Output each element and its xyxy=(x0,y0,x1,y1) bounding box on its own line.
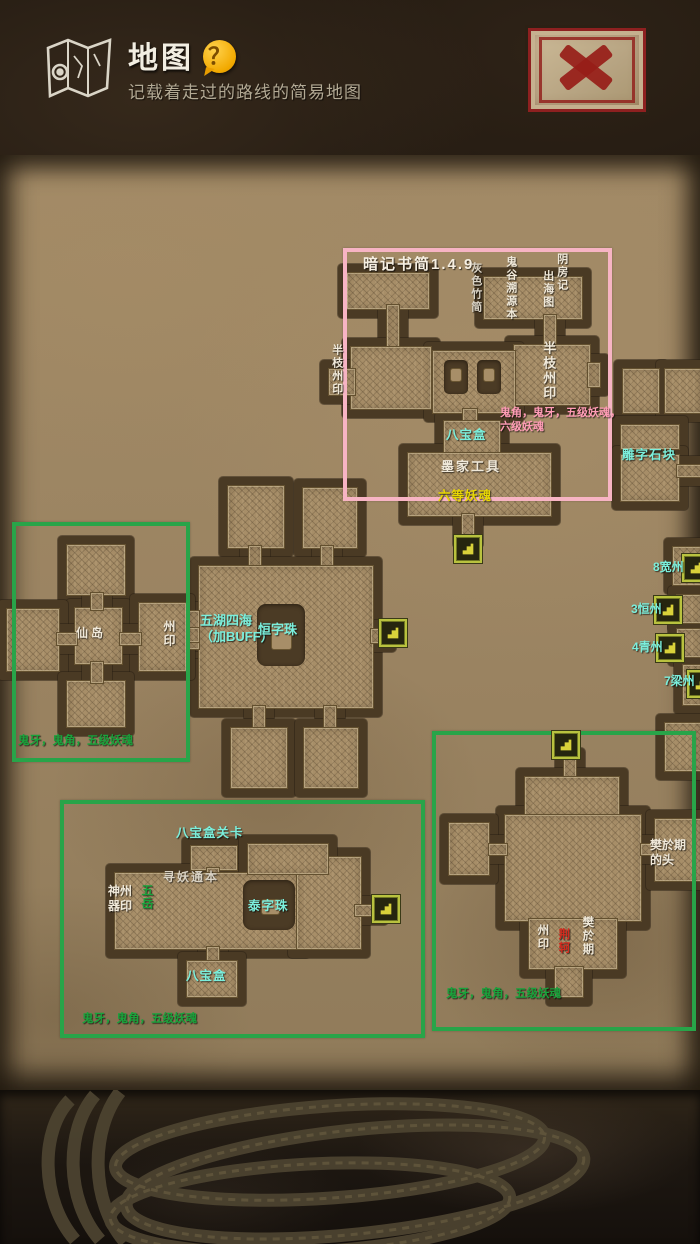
map-room xyxy=(230,727,288,789)
map-canvas: 暗记书简1.4.9 灰色竹简 鬼谷溯源本 阴房记 出海图 半枝州印 半枝州印 鬼… xyxy=(0,0,700,1244)
map-label: 五岳 xyxy=(139,884,154,910)
map-corridor xyxy=(676,464,700,478)
map-room xyxy=(622,368,660,414)
map-window: 地图 ？ 记载着走过的路线的简易地图 xyxy=(0,0,700,1244)
map-label: 鬼牙，鬼角，五级妖魂 xyxy=(82,1012,197,1026)
map-label: 州印 xyxy=(535,924,549,951)
map-label: 3恒州 xyxy=(631,602,662,617)
annotation-box-green-bottom-right xyxy=(432,731,696,1031)
map-label: 鬼谷溯源本 xyxy=(503,256,517,321)
map-label: 出海图 xyxy=(540,270,554,309)
map-room xyxy=(664,368,700,414)
map-label: 樊於期 的头 xyxy=(650,838,686,868)
map-label: 州印 xyxy=(161,620,176,648)
map-label: 泰字珠 xyxy=(248,899,289,915)
map-room xyxy=(620,424,680,450)
map-label: 寻妖通本 xyxy=(163,870,219,885)
map-label: 8宽州 xyxy=(653,560,684,575)
stairs-exit-icon xyxy=(554,733,578,757)
map-label: 荆轲 xyxy=(556,928,570,955)
map-label: 神州 器印 xyxy=(108,884,132,914)
map-label: 鬼角，鬼牙，五级妖魂，六级妖魂 xyxy=(500,407,622,435)
map-label: 阴房记 xyxy=(554,253,568,292)
map-label: 灰色竹简 xyxy=(468,262,482,314)
map-label: 六等妖魂 xyxy=(438,489,492,505)
stairs-exit-icon xyxy=(456,537,480,561)
map-corridor xyxy=(461,513,475,540)
map-label: 4青州 xyxy=(632,640,663,655)
map-label: 八宝盒关卡 xyxy=(176,826,244,842)
stairs-exit-icon xyxy=(374,897,398,921)
stairs-exit-icon xyxy=(684,556,700,580)
map-label: 半枝州印 xyxy=(329,344,343,396)
map-label: 八宝盒 xyxy=(446,428,487,444)
map-room xyxy=(303,727,359,789)
stairs-exit-icon xyxy=(381,621,405,645)
map-label: 仙岛 xyxy=(76,626,106,641)
map-label: 八宝盒 xyxy=(186,969,227,985)
map-label: 7梁州 xyxy=(664,674,695,689)
map-label: 半枝州印 xyxy=(540,341,556,401)
map-label: 雕字石块 xyxy=(622,448,676,464)
map-label: 暗记书简1.4.9 xyxy=(363,256,474,275)
map-label: 樊於期 xyxy=(580,916,594,957)
map-label: 鬼牙，鬼角，五级妖魂 xyxy=(18,734,133,748)
map-label: 鬼牙，鬼角，五级妖魂 xyxy=(446,987,561,1001)
map-label: 恒字珠 xyxy=(258,622,297,638)
map-label: 墨家工具 xyxy=(441,459,501,475)
map-room xyxy=(227,485,285,549)
